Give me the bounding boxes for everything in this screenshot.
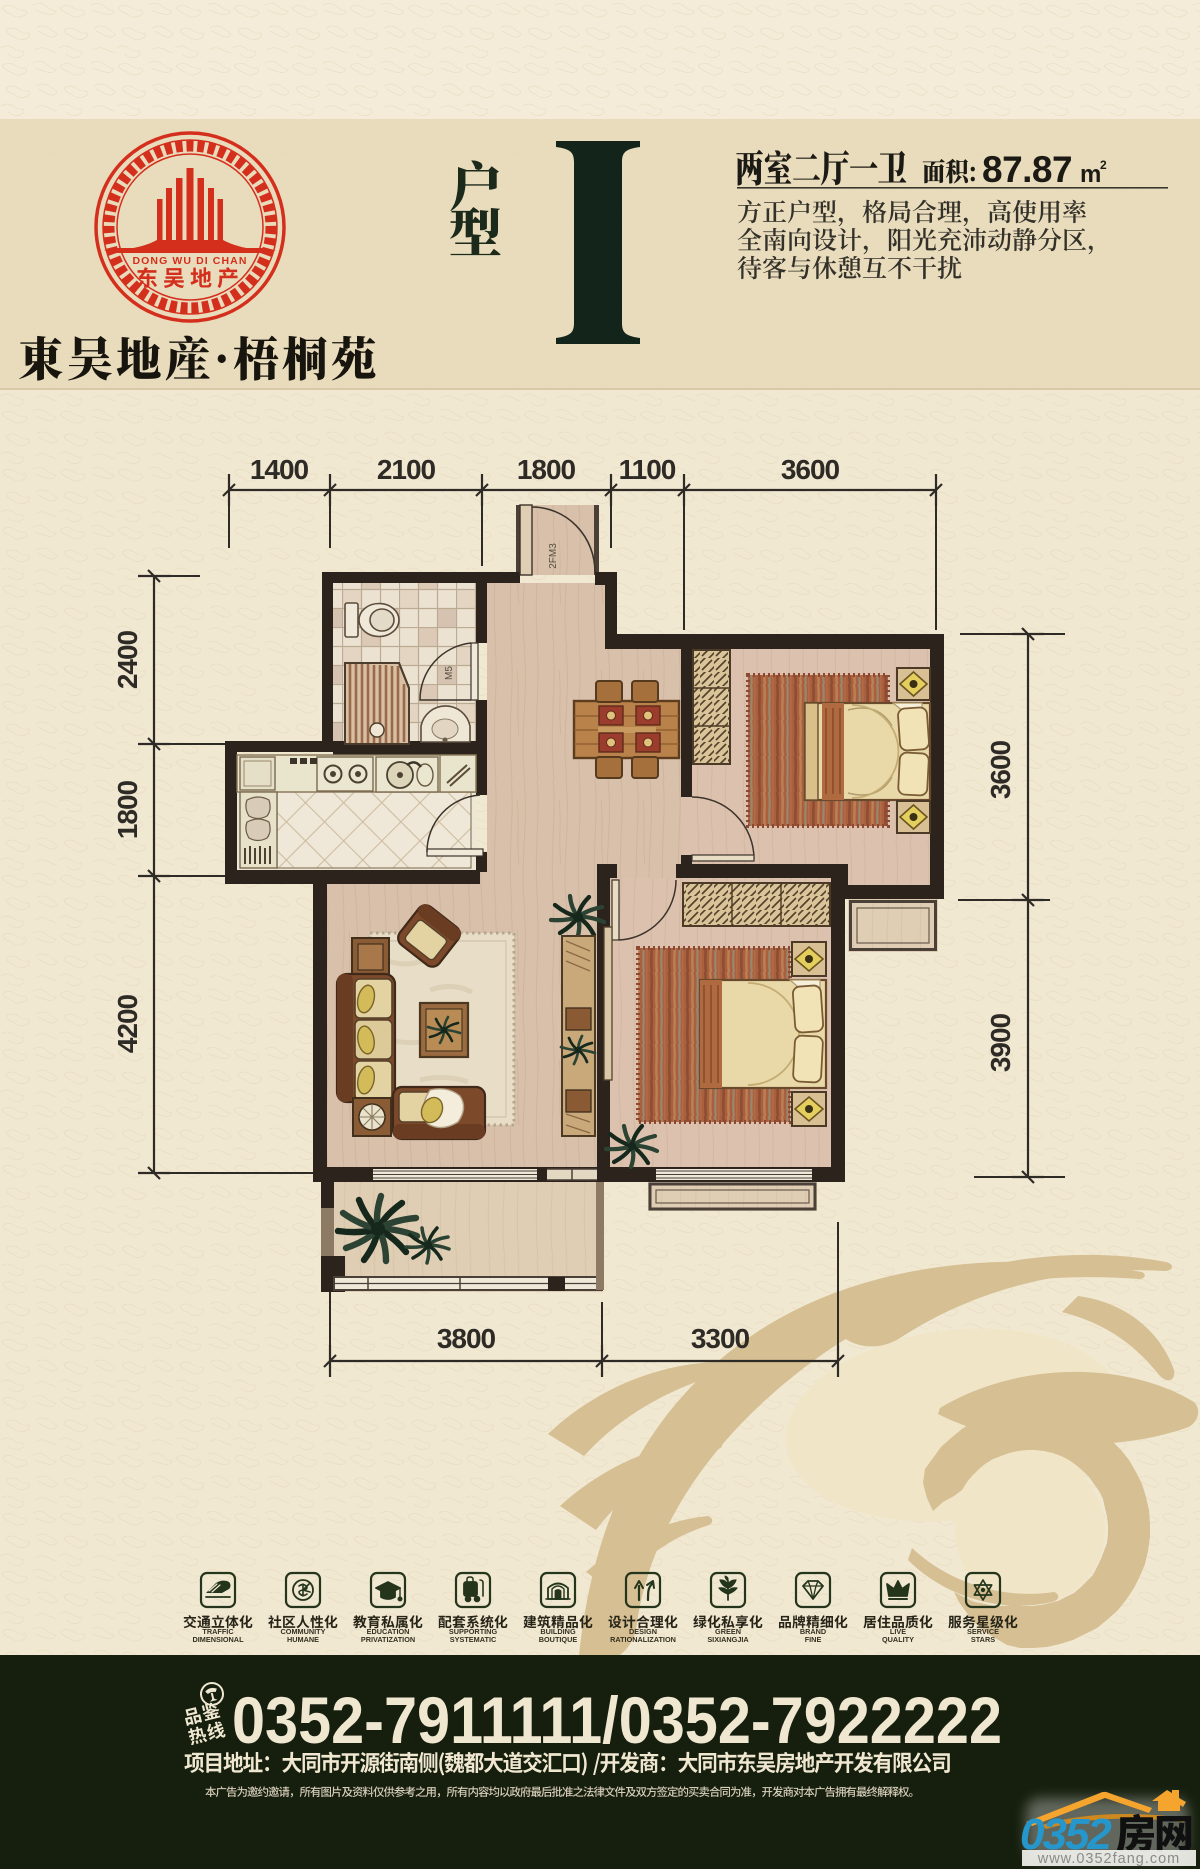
svg-text:HUMANE: HUMANE [287,1635,319,1644]
svg-text:87.87: 87.87 [982,149,1072,190]
svg-text:3600: 3600 [985,740,1016,799]
svg-text:2400: 2400 [112,630,143,689]
svg-text:3300: 3300 [691,1323,750,1354]
svg-text:3800: 3800 [437,1323,496,1354]
svg-text:1400: 1400 [250,454,309,485]
svg-text:SYSTEMATIC: SYSTEMATIC [450,1635,497,1644]
svg-text:2100: 2100 [377,454,436,485]
svg-text:3600: 3600 [781,454,840,485]
svg-text:1800: 1800 [112,780,143,839]
svg-text:QUALITY: QUALITY [882,1635,914,1644]
svg-text:2: 2 [1100,158,1107,172]
svg-text:2FM3: 2FM3 [548,543,559,569]
svg-text:1100: 1100 [619,454,676,485]
svg-text:BOUTIQUE: BOUTIQUE [539,1635,578,1644]
svg-text:SIXIANGJIA: SIXIANGJIA [707,1635,749,1644]
svg-text:STARS: STARS [971,1635,995,1644]
svg-text:FINE: FINE [805,1635,822,1644]
svg-text:M5: M5 [444,666,455,680]
svg-text:m: m [1080,161,1101,188]
svg-text:3900: 3900 [985,1013,1016,1072]
svg-text:www.0352fang.com: www.0352fang.com [1037,1851,1181,1867]
svg-text:DIMENSIONAL: DIMENSIONAL [192,1635,244,1644]
svg-text:1800: 1800 [517,454,576,485]
svg-text:0352-7911111/0352-7922222: 0352-7911111/0352-7922222 [232,1683,1002,1757]
svg-text:RATIONALIZATION: RATIONALIZATION [610,1635,676,1644]
svg-text:DONG WU DI CHAN: DONG WU DI CHAN [132,255,247,267]
svg-text:PRIVATIZATION: PRIVATIZATION [361,1635,415,1644]
svg-text:4200: 4200 [112,994,143,1053]
